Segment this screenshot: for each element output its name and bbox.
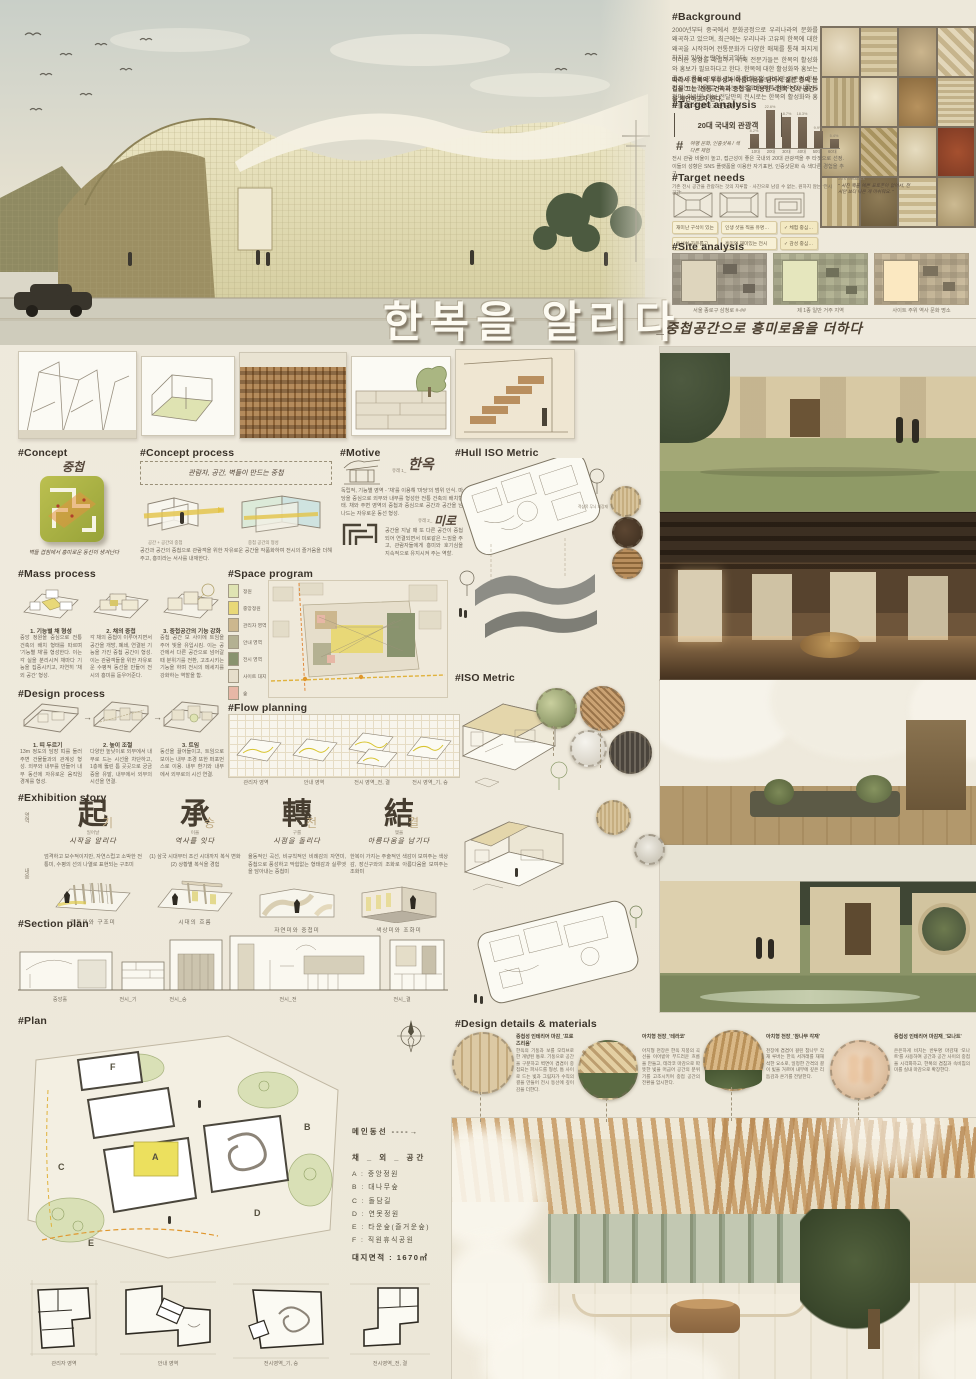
concept-sketch-1 [18, 351, 137, 439]
age-bar-chart: 8.2% 22.6% 18.7% 18.3% 9.9% 5.4% 10대 20대… [748, 102, 840, 155]
story-chapter-3: 轉 전 구를 시점을 돌리다 율동적인 곡선, 비규칙적인 비례감의 자연미, … [248, 800, 346, 934]
flow-planning-board [228, 714, 460, 778]
collage-cell [899, 28, 936, 76]
detail-circle-lattice [580, 686, 625, 731]
bar-chart-bars: 8.2% 22.6% 18.7% 18.3% 9.9% 5.4% [748, 102, 840, 148]
design-step-title: 1. 띠 두르기 [33, 740, 62, 749]
bar [798, 117, 807, 148]
space-program-legend: 정원 중앙정원 관리자 영역 안내 영역 전시 영역 사이트 대지 숲 [228, 584, 266, 703]
small-plan-caption: 전시영역_전, 결 [348, 1360, 432, 1367]
legend-swatch [228, 669, 239, 683]
small-plan-caption: 전시영역_기, 승 [231, 1360, 331, 1367]
story-chapter-2: 承 승 이을 역사를 잇다 (1) 삼국 시대부터 조선 시대까지 복식 변화 … [146, 800, 244, 926]
svg-text:A: A [152, 1152, 159, 1162]
hull-iso-drawing [455, 458, 605, 663]
detail-circle-stone [634, 834, 665, 865]
legend-swatch [228, 686, 239, 700]
connector-dash [606, 1098, 608, 1122]
row-label-content: 내용 [22, 868, 30, 879]
bar [830, 139, 839, 148]
stone-wall-sketch [351, 356, 451, 436]
chapter-axon [50, 873, 136, 915]
aerial-map-thumb [773, 253, 868, 305]
story-chapter-4: 結 결 맺을 아름다움을 남기다 한복이 가지는 주술적인 색감이 보여주는 색… [350, 800, 448, 934]
site-analysis-heading: #Site analysis [672, 241, 744, 253]
detail-circle-curtain [609, 731, 652, 774]
presentation-board: 한복을 알리다 _중첩공간으로 흥미로움을 더하다 #Background 20… [0, 0, 976, 1379]
row-label-area: 영역 [22, 812, 30, 823]
chapter-axon [356, 881, 442, 923]
detail-text: 한옥의 기둥과 보를 모티브로 한 개방된 통로. 기둥으로 공간을 구분하고 … [516, 1048, 574, 1093]
feedback-label: 20's feedback [838, 176, 865, 181]
chapter-axon [254, 881, 340, 923]
need-tag: 재미난 구석이 있는 [672, 221, 718, 234]
chapter-tagline: 시작을 알리다 [44, 836, 142, 846]
aerial-caption: 제 1종 일반 거주 지역 [773, 307, 868, 314]
iso-plan-plate [468, 898, 648, 1006]
plan-main-flow: 메인동선 ----→ [352, 1126, 419, 1137]
detail-photo-oak-louvers [703, 1030, 764, 1091]
bar-value: 18.7% [780, 112, 792, 116]
background-heading: #Background [672, 11, 741, 23]
legend-label: 중앙정원 [243, 605, 261, 612]
bar-tick: 10대 [748, 149, 763, 155]
plan-legend-item: B : 대나무숲 [352, 1181, 430, 1194]
collage-cell [899, 128, 936, 176]
svg-text:F: F [110, 1062, 116, 1072]
aerial-caption: 사이트 주위 역사 문화 명소 [874, 307, 969, 314]
detail-photo-door-panels [452, 1032, 514, 1094]
collage-cell [861, 28, 898, 76]
section-caption: 중앙홀 [30, 996, 90, 1003]
small-plan-1 [28, 1278, 100, 1358]
small-plan-4 [348, 1278, 432, 1360]
legend-swatch [228, 618, 239, 632]
flow-caption: 관리자 영역 [228, 779, 284, 786]
bar-tick: 40대 [794, 149, 809, 155]
motive-tag-2: 유래 2_ [418, 518, 432, 524]
motive-word-maze: 미로 [434, 512, 456, 529]
hanbok-pattern-collage [820, 26, 976, 228]
detail-text: 아치형 천장은 한옥 지붕의 곡선을 이어받아 부드러운 흐름을 만들고, 테라… [642, 1048, 700, 1087]
plan-legend-item: A : 중앙정원 [352, 1168, 430, 1181]
collage-cell [899, 78, 936, 126]
chapter-tagline: 시점을 돌리다 [248, 836, 346, 846]
detail-text: 천장에 겹겹이 걸린 참나무 각재 루버는 한옥 서까래를 재해석한 요소로, … [766, 1048, 824, 1080]
aerial-map-thumb [874, 253, 969, 305]
concept-diagram [40, 476, 104, 542]
target-analysis-heading: #Target analysis [672, 99, 757, 111]
overlap-diagram-1 [140, 490, 230, 538]
need-tag-check: ✓ 감성 중심 전시관 [780, 237, 818, 250]
plan-legend-item: F : 직원휴식공원 [352, 1234, 430, 1247]
mass-step-1-axon [20, 582, 82, 624]
design-step-text: 13m 정도의 담장 띠를 둘러 주변 건물들과의 관계성 형성. 외부와 내부… [20, 749, 82, 787]
mass-step-2-axon [90, 582, 152, 624]
space-program-heading: #Space program [228, 568, 313, 580]
render-final-interior [452, 1118, 976, 1379]
plan-legend-title: 채 _ 외 _ 공간 [352, 1152, 426, 1163]
design-step-2-axon [90, 698, 152, 738]
bar-tick: 20대 [763, 149, 778, 155]
chapter-body: 율동적인 곡선, 비규칙적인 비례감의 자연미, 중첩으로 풍성하고 막힘없는 … [248, 854, 346, 877]
collage-cell [938, 28, 975, 76]
design-step-text: 동선을 끌어들이고, 트임으로 보이는 내부 조경 또한 퍼포먼스로 이용. 내… [160, 749, 224, 779]
detail-text: 은은하게 비치는 반투명 마감재 '모나트'를 사용하여 공간과 공간 사이의 … [894, 1048, 970, 1074]
material-circle-slats [612, 548, 643, 579]
site-plan-drawing: ABC DEF [18, 1030, 348, 1264]
arrow-right-icon: → [153, 712, 162, 722]
mass-step-3-axon [160, 582, 222, 624]
overlap-caption-2: 중첩 공간의 형성 [248, 540, 279, 546]
collage-cell-red-seal [938, 128, 975, 176]
legend-label: 전시 영역 [243, 656, 262, 663]
hashtag-hand-note: 여행 문화, 인증샷욕 / 색다른 체험 [690, 141, 742, 155]
detail-title: 중첩성 인테리어 마감_'프로즈리움' [516, 1034, 574, 1047]
bar-tick: 50대 [809, 149, 824, 155]
flow-planning-heading: #Flow planning [228, 702, 307, 714]
chapter-tagline: 아름다움을 남기다 [350, 836, 448, 846]
section-drawings [18, 930, 448, 992]
connector-dash [480, 1092, 482, 1122]
bar-value: 5.4% [828, 134, 840, 138]
detail-title: 아치형 천장_'테라코' [642, 1034, 700, 1041]
plan-legend-item: E : 타운숲(즐거운숲) [352, 1221, 430, 1234]
material-label: 적삼목 무늬 외장재 [568, 505, 608, 510]
space-program-map [268, 580, 448, 698]
site-analysis-thumbs: 서울 종로구 삼청로 #-## 제 1종 일반 거주 지역 사이트 주위 역사 … [672, 253, 969, 314]
connector-dash [858, 1098, 860, 1120]
concept-heading: #Concept [18, 447, 67, 459]
hashtag-glyph: # [676, 138, 683, 153]
concept-process-hand-note: 관람자, 공간, 벽들이 만드는 중첩 [140, 461, 332, 485]
section-caption: 전시_결 [382, 996, 422, 1003]
detail-title: 중첩성 인테리어 마감재_'모나트' [894, 1034, 970, 1041]
legend-swatch [228, 635, 239, 649]
design-details-heading: #Design details & materials [455, 1018, 597, 1030]
design-step-title: 2. 높이 조절 [103, 740, 132, 749]
legend-label: 관리자 영역 [243, 622, 266, 629]
material-circle-cedar [610, 486, 641, 517]
design-step-3-axon [160, 698, 222, 738]
mass-step-title: 3. 중첩공간의 기능 강화 [160, 626, 224, 635]
section-caption: 전시_전 [268, 996, 308, 1003]
overlap-diagram-2 [236, 490, 326, 538]
design-step-text: 다양한 높낮이로 외부에서 내부로 드는 시선을 차단하고, 1층에 뚫린 틈 … [90, 749, 152, 787]
bar-value: 8.2% [748, 129, 760, 133]
render-exhibition-hall [660, 512, 976, 680]
connector-dash [731, 1087, 733, 1121]
legend-label: 정원 [243, 588, 252, 595]
design-step-1-axon [20, 698, 82, 738]
legend-swatch [228, 584, 239, 598]
concept-process-heading: #Concept process [140, 447, 234, 459]
chapter-body: (1) 삼국 시대부터 조선 시대까지 복식 변화 (2) 상황별 복식을 경험 [146, 854, 244, 869]
motive-text-2: 공간을 지날 때 또 다른 공간이 중첩되어 연결되면서 미로같은 느낌을 주고… [385, 528, 463, 558]
chapter-body: 엄격하고 보수적이지만, 자연스럽고 소박한 전통미, 수평의 선의 나열로 표… [44, 854, 142, 869]
visitor-quote: " 사진 찍을 예쁜 포토존이 없어서, 전시만 보다 나온 게 아쉬워요. " [838, 183, 910, 196]
section-caption: 전시_승 [158, 996, 198, 1003]
svg-text:C: C [58, 1162, 65, 1172]
need-tag: 인생 샷을 찍을 유명한 포토스팟 [721, 221, 777, 234]
plan-legend-item: C : 돌담길 [352, 1195, 430, 1208]
concept-caption: 벽들 겹침에서 흥미로운 동선이 생겨난다 [22, 548, 126, 556]
render-moongate-garden [660, 845, 976, 1012]
small-plan-caption: 관리자 영역 [28, 1360, 100, 1367]
mass-step-text: 중첩 공간 보 사이에 트임을 주어 빛을 유입시킴. 이는 공간에서 다른 공… [160, 635, 224, 680]
stair-interior-sketch [455, 349, 575, 439]
mass-step-text: 중앙 정원을 중심으로 전통 건축의 배치 형태를 따르며 '기능별 채'를 형… [20, 635, 82, 680]
connector-dash [600, 728, 602, 768]
bar-value: 22.6% [764, 105, 776, 109]
legend-swatch [228, 601, 239, 615]
section-plan-heading: #Section plan [18, 918, 89, 930]
overlap-caption-1: 공간 + 공간의 중첩 [148, 540, 183, 546]
plan-heading: #Plan [18, 1015, 47, 1027]
hanok-sketch [342, 456, 382, 486]
collage-cell [861, 128, 898, 176]
collage-cell [861, 78, 898, 126]
flow-caption: 전시 영역_기, 승 [402, 779, 458, 786]
plan-legend-list: A : 중앙정원 B : 대나무숲 C : 돌담길 D : 연못정원 E : 타… [352, 1168, 430, 1248]
mass-process-heading: #Mass process [18, 568, 96, 580]
motive-word-hanok: 한옥 [408, 454, 434, 474]
perspective-frame-diagram [719, 192, 759, 218]
chapter-hangul: 승 [204, 814, 215, 831]
small-plan-caption: 안내 영역 [118, 1360, 218, 1367]
concept-sketch-2 [141, 356, 235, 436]
perspective-frame-diagram [765, 192, 805, 218]
story-chapter-1: 起 기 일어날 시작을 알리다 엄격하고 보수적이지만, 자연스럽고 소박한 전… [44, 800, 142, 926]
small-plan-2 [118, 1276, 218, 1360]
legend-swatch [228, 652, 239, 666]
legend-label: 사이트 대지 [243, 673, 266, 680]
plan-legend-item: D : 연못정원 [352, 1208, 430, 1221]
aerial-map-thumb [672, 253, 767, 305]
connector-dash [553, 726, 555, 756]
poster-title: 한복을 알리다 [383, 288, 681, 350]
detail-photo-hanbok-glow [830, 1040, 890, 1100]
bar [766, 110, 775, 148]
target-needs-heading: #Target needs [672, 172, 745, 184]
poster-subtitle: _중첩공간으로 흥미로움을 더하다 [657, 317, 863, 337]
svg-text:D: D [254, 1208, 261, 1218]
legend-label: 숲 [243, 690, 247, 697]
iso-heading: #ISO Metric [455, 672, 515, 684]
need-tag-check: ✓ 체험 중심 전시관 [780, 221, 818, 234]
svg-text:E: E [88, 1238, 94, 1248]
render-courtyard [660, 347, 976, 512]
chapter-body: 한복이 가지는 주술적인 색감이 보여주는 색상감, 장신구와의 조화로 아름다… [350, 854, 448, 877]
detail-photo-arch-terrace [578, 1040, 638, 1100]
detail-title: 아치형 천장_'참나무 각재' [766, 1034, 824, 1041]
svg-text:B: B [304, 1122, 311, 1132]
mass-step-title: 1. 기능별 채 형성 [20, 626, 82, 635]
material-circle-darkwood [612, 517, 643, 548]
bar [814, 131, 823, 148]
compass-icon [396, 1018, 426, 1054]
chapter-hangul: 전 [306, 814, 317, 831]
bar [782, 117, 791, 148]
mass-step-title: 2. 채의 중첩 [90, 626, 152, 635]
concept-hand-word: 중첩 [62, 458, 84, 475]
flow-caption: 전시 영역_전, 결 [344, 779, 400, 786]
chapter-axon [152, 873, 238, 915]
detail-circle-moss [536, 688, 577, 729]
bar-tick: 30대 [779, 149, 794, 155]
render-fabric-ceiling-interior [660, 680, 976, 845]
chapter-tagline: 역사를 잇다 [146, 836, 244, 846]
bar-value: 18.3% [796, 112, 808, 116]
chapter-hangul: 기 [102, 814, 113, 831]
perspective-frame-diagram [673, 192, 713, 218]
bar [750, 134, 759, 148]
concept-process-body: 공간과 공간의 중첩으로 관람객을 위한 자유로운 공간을 작품화하여 전시의 … [140, 548, 332, 563]
wood-lattice-model [239, 352, 347, 439]
legend-label: 안내 영역 [243, 639, 262, 646]
chapter-caption: 시대의 흐름 [146, 918, 244, 926]
detail-circle-straw [596, 800, 631, 835]
design-step-title: 3. 트임 [182, 740, 199, 749]
flow-caption: 안내 영역 [286, 779, 342, 786]
motive-tag-1: 유래 1_ [392, 468, 406, 474]
collage-cell [938, 178, 975, 226]
collage-cell [938, 78, 975, 126]
section-caption: 전시_기 [108, 996, 148, 1003]
mass-step-text: 각 채의 중첩이 이루어지면서 공간을 개방, 폐쇄, 연결된 기능을 가진 중… [90, 635, 152, 680]
small-plan-3 [231, 1280, 331, 1362]
maze-sketch [341, 520, 379, 548]
bar-value: 9.9% [812, 126, 824, 130]
bar-tick: 60대 [825, 149, 840, 155]
arrow-right-icon: → [83, 712, 92, 722]
plan-area: 대지면적 : 1670㎡ [352, 1252, 428, 1263]
chapter-hangul: 결 [408, 814, 419, 831]
collage-cell [822, 28, 859, 76]
aerial-caption: 서울 종로구 삼청로 #-## [672, 307, 767, 314]
